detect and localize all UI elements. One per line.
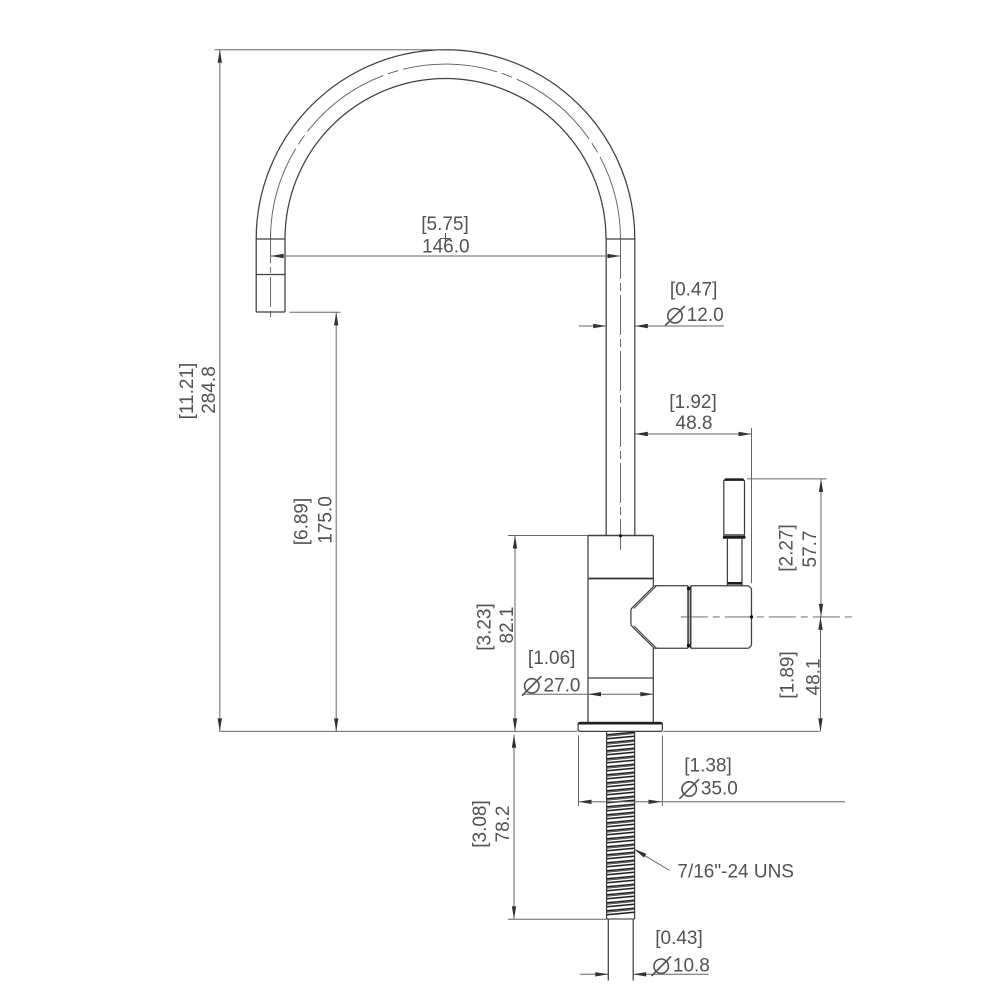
svg-text:[3.08]: [3.08] xyxy=(470,800,491,848)
svg-text:[1.38]: [1.38] xyxy=(684,756,732,777)
svg-text:[6.89]: [6.89] xyxy=(292,498,313,546)
svg-text:48.8: 48.8 xyxy=(676,413,713,434)
svg-text:27.0: 27.0 xyxy=(544,675,581,696)
svg-text:175.0: 175.0 xyxy=(316,496,337,544)
svg-text:82.1: 82.1 xyxy=(497,607,518,644)
svg-text:[2.27]: [2.27] xyxy=(777,524,798,572)
svg-text:[1.92]: [1.92] xyxy=(669,392,717,413)
svg-text:57.7: 57.7 xyxy=(800,531,821,568)
svg-text:[1.06]: [1.06] xyxy=(528,648,576,669)
svg-text:10.8: 10.8 xyxy=(673,956,710,977)
svg-text:[0.47]: [0.47] xyxy=(670,280,718,301)
svg-text:[11.21]: [11.21] xyxy=(177,363,198,420)
svg-text:146.0: 146.0 xyxy=(422,237,470,258)
svg-text:7/16"-24 UNS: 7/16"-24 UNS xyxy=(677,861,794,882)
svg-text:284.8: 284.8 xyxy=(199,366,220,414)
svg-text:[5.75]: [5.75] xyxy=(421,214,469,235)
svg-text:48.1: 48.1 xyxy=(804,659,825,696)
svg-text:12.0: 12.0 xyxy=(687,305,724,326)
svg-text:[0.43]: [0.43] xyxy=(655,928,703,949)
svg-text:35.0: 35.0 xyxy=(701,779,738,800)
svg-text:[3.23]: [3.23] xyxy=(474,603,495,651)
svg-text:[1.89]: [1.89] xyxy=(778,651,799,699)
svg-text:78.2: 78.2 xyxy=(493,806,514,843)
